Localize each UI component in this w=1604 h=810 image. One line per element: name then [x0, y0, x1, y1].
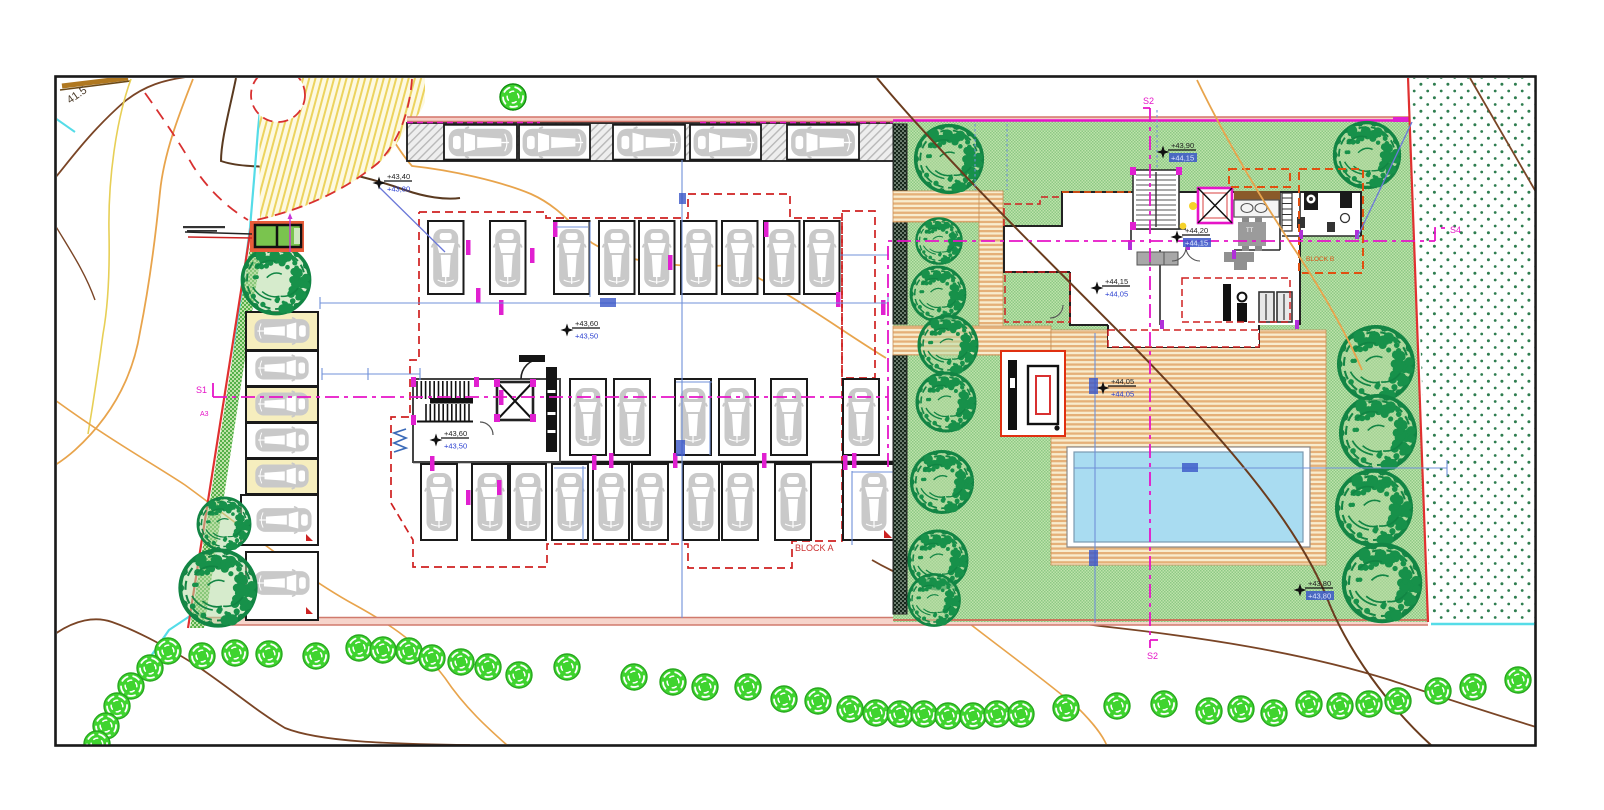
- svg-text:S1: S1: [196, 385, 207, 395]
- svg-text:+44,15: +44,15: [1171, 154, 1194, 163]
- svg-text:+44,15: +44,15: [1185, 239, 1208, 248]
- svg-text:S4: S4: [1450, 225, 1461, 235]
- svg-text:TT: TT: [1246, 228, 1254, 234]
- svg-text:+43,60: +43,60: [575, 319, 598, 328]
- svg-text:+43,80: +43,80: [1308, 579, 1331, 588]
- svg-text:+44,05: +44,05: [1111, 390, 1134, 399]
- svg-text:S2: S2: [1147, 651, 1158, 661]
- svg-text:S2: S2: [1143, 96, 1154, 106]
- svg-text:BLOCK A: BLOCK A: [795, 543, 834, 553]
- svg-text:BLOCK B: BLOCK B: [1306, 256, 1334, 263]
- svg-text:+44,05: +44,05: [1105, 290, 1128, 299]
- svg-text:+43,90: +43,90: [1171, 141, 1194, 150]
- svg-text:+44,20: +44,20: [1185, 226, 1208, 235]
- svg-text:+43,60: +43,60: [444, 429, 467, 438]
- svg-text:+43,50: +43,50: [575, 332, 598, 341]
- svg-text:+43,50: +43,50: [444, 442, 467, 451]
- svg-text:+43,80: +43,80: [387, 185, 410, 194]
- svg-text:A3: A3: [200, 411, 209, 418]
- svg-text:+43,40: +43,40: [387, 172, 410, 181]
- svg-text:+44,15: +44,15: [1105, 277, 1128, 286]
- svg-text:+43,80: +43,80: [1308, 592, 1331, 601]
- svg-text:+44,05: +44,05: [1111, 377, 1134, 386]
